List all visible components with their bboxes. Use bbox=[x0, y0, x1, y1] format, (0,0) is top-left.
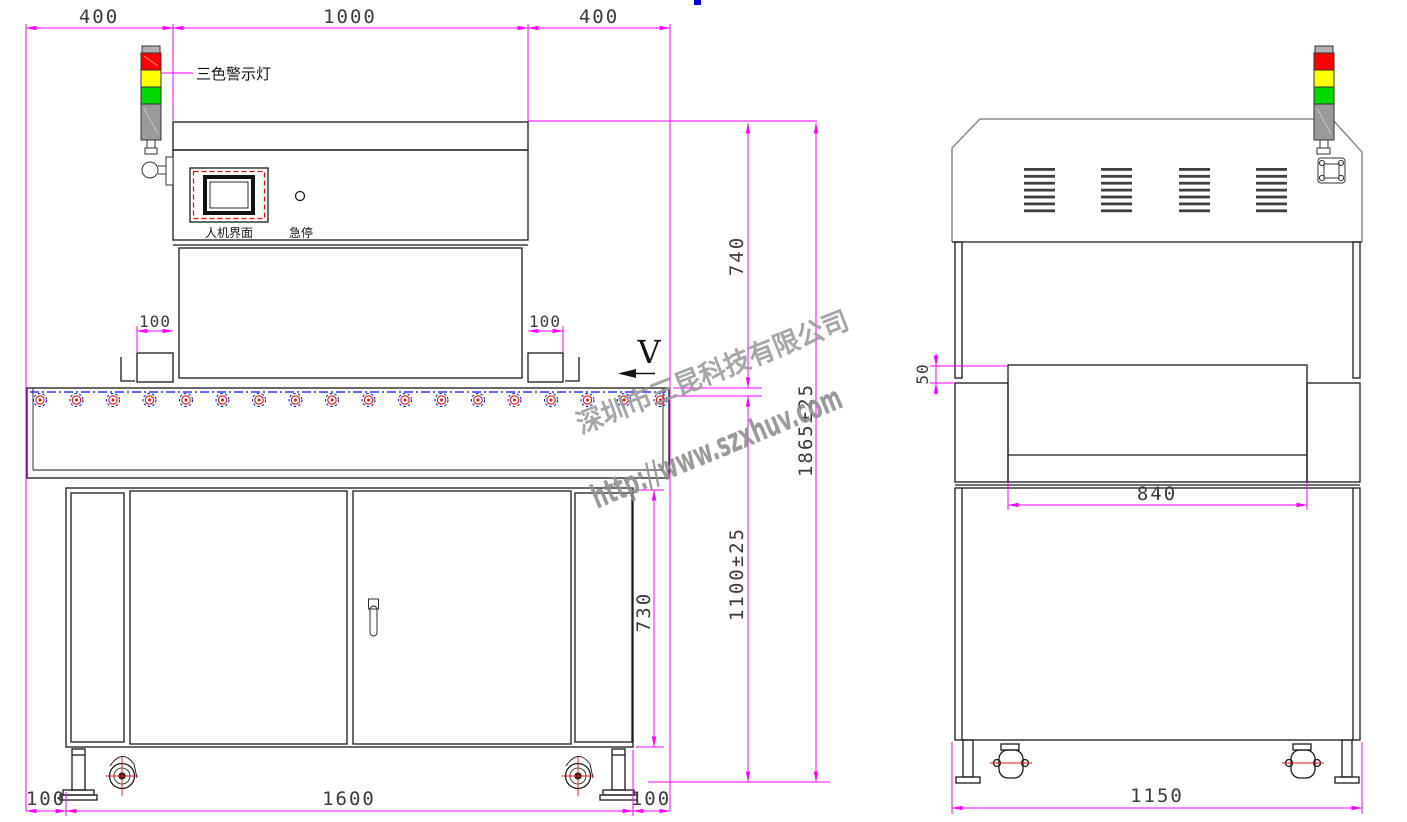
estop-button[interactable] bbox=[296, 192, 305, 201]
casters-side bbox=[990, 744, 1324, 778]
machine-outline-side bbox=[955, 242, 1360, 783]
cabinet-door-right bbox=[353, 491, 571, 744]
hmi-label: 人机界面 bbox=[205, 226, 253, 240]
hmi-panel bbox=[190, 168, 305, 222]
dim-step: 50 bbox=[913, 363, 932, 384]
estop-label: 急停 bbox=[289, 225, 313, 240]
hmi-screen[interactable] bbox=[210, 182, 248, 208]
mount-plate bbox=[166, 157, 173, 185]
uv-machine-drawing: 400 1000 400 100 100 740 1865±25 1100±25… bbox=[0, 0, 1407, 822]
light-cap bbox=[142, 46, 160, 53]
support-right bbox=[528, 353, 563, 382]
dim-bottom-left: 100 bbox=[26, 788, 66, 810]
conveyor-cross-section bbox=[1008, 365, 1307, 482]
rail-bracket-right bbox=[565, 357, 579, 381]
conveyor-table bbox=[27, 388, 669, 478]
cad-drawing-canvas: 400 1000 400 100 100 740 1865±25 1100±25… bbox=[0, 0, 1407, 822]
cabinet-side bbox=[955, 488, 1360, 740]
dim-top-right: 400 bbox=[579, 6, 619, 28]
dimensions-side bbox=[930, 354, 1362, 814]
warning-light-tower-side bbox=[1314, 46, 1345, 183]
uv-lamp-housing bbox=[179, 248, 522, 378]
direction-label: V bbox=[636, 333, 661, 371]
front-view: 400 1000 400 100 100 740 1865±25 1100±25… bbox=[26, 6, 830, 816]
support-left bbox=[137, 353, 173, 382]
dim-bottom-center: 1600 bbox=[322, 788, 376, 810]
hood-outline bbox=[952, 119, 1362, 242]
dim-belt-height: 1100±25 bbox=[726, 527, 748, 621]
blue-artifact bbox=[694, 0, 701, 5]
left-arrowhead bbox=[618, 369, 636, 378]
light-base bbox=[141, 104, 161, 140]
dim-bottom-right: 100 bbox=[631, 788, 671, 810]
light-red bbox=[1314, 53, 1334, 70]
dim-top-center: 1000 bbox=[323, 6, 377, 28]
cabinet-frame bbox=[66, 488, 633, 747]
dim-support-left: 100 bbox=[139, 312, 171, 331]
dim-upper-height: 740 bbox=[726, 236, 748, 276]
light-yellow bbox=[1314, 70, 1334, 87]
watermark: 深圳市三昆科技有限公司 http://www.szxhuv.com bbox=[572, 304, 854, 516]
machine-outline-front bbox=[27, 122, 669, 747]
rail-bracket-left bbox=[121, 357, 135, 381]
dim-support-right: 100 bbox=[529, 312, 561, 331]
dim-top-left: 400 bbox=[79, 6, 119, 28]
cabinet-panel-left bbox=[71, 493, 124, 742]
dim-cabinet-height: 730 bbox=[633, 592, 655, 632]
light-yellow bbox=[141, 70, 161, 87]
dim-overall-depth: 1150 bbox=[1130, 785, 1184, 807]
side-view: 50 840 1150 bbox=[913, 46, 1362, 814]
light-base bbox=[1314, 104, 1334, 140]
cabinet-door-left bbox=[130, 491, 347, 744]
warning-light-label: 三色警示灯 bbox=[196, 65, 271, 83]
cabinet-panel-right bbox=[575, 493, 632, 742]
dim-conveyor-width: 840 bbox=[1137, 483, 1177, 505]
light-green bbox=[1314, 87, 1334, 104]
light-green bbox=[141, 87, 161, 104]
conveyor-rollers bbox=[34, 394, 668, 407]
vent-grilles bbox=[1024, 168, 1287, 212]
warning-light-tower-front bbox=[141, 46, 173, 185]
light-red bbox=[141, 53, 161, 70]
mount-ball-joint bbox=[142, 162, 158, 178]
